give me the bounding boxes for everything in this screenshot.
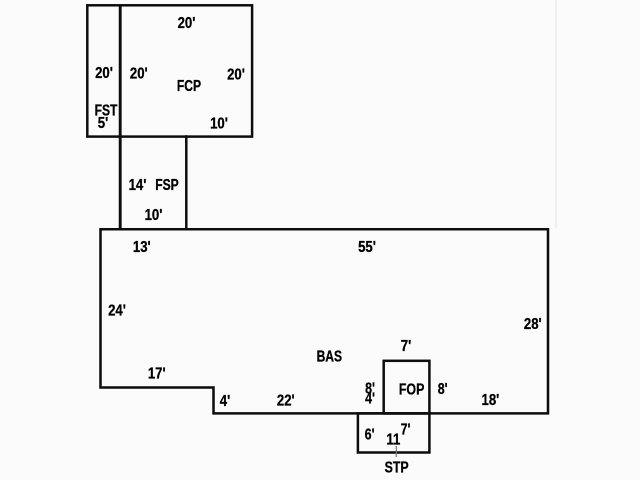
svg-text:8': 8' xyxy=(438,380,448,398)
svg-text:5': 5' xyxy=(98,115,108,132)
svg-text:STP: STP xyxy=(385,458,409,476)
svg-text:FCP: FCP xyxy=(177,77,201,95)
svg-text:FSP: FSP xyxy=(155,176,178,194)
svg-text:14': 14' xyxy=(129,177,147,194)
svg-text:24': 24' xyxy=(108,303,126,320)
svg-text:7': 7' xyxy=(401,338,411,355)
svg-text:6': 6' xyxy=(365,425,375,443)
svg-text:22': 22' xyxy=(277,393,295,410)
svg-text:10': 10' xyxy=(145,207,163,224)
svg-text:20': 20' xyxy=(178,15,196,32)
svg-text:10': 10' xyxy=(210,116,228,133)
svg-text:13': 13' xyxy=(133,239,151,256)
svg-text:7': 7' xyxy=(401,420,411,438)
svg-text:BAS: BAS xyxy=(317,347,342,365)
svg-text:FOP: FOP xyxy=(399,380,424,398)
svg-text:4': 4' xyxy=(365,389,375,407)
svg-text:17': 17' xyxy=(148,366,166,383)
svg-text:20': 20' xyxy=(130,66,148,83)
svg-text:4': 4' xyxy=(220,393,230,410)
svg-text:20': 20' xyxy=(227,66,245,83)
svg-text:55': 55' xyxy=(358,239,376,256)
svg-text:28': 28' xyxy=(524,316,542,333)
svg-text:11: 11 xyxy=(386,432,400,449)
svg-text:18': 18' xyxy=(482,392,500,409)
svg-text:20': 20' xyxy=(95,65,113,82)
